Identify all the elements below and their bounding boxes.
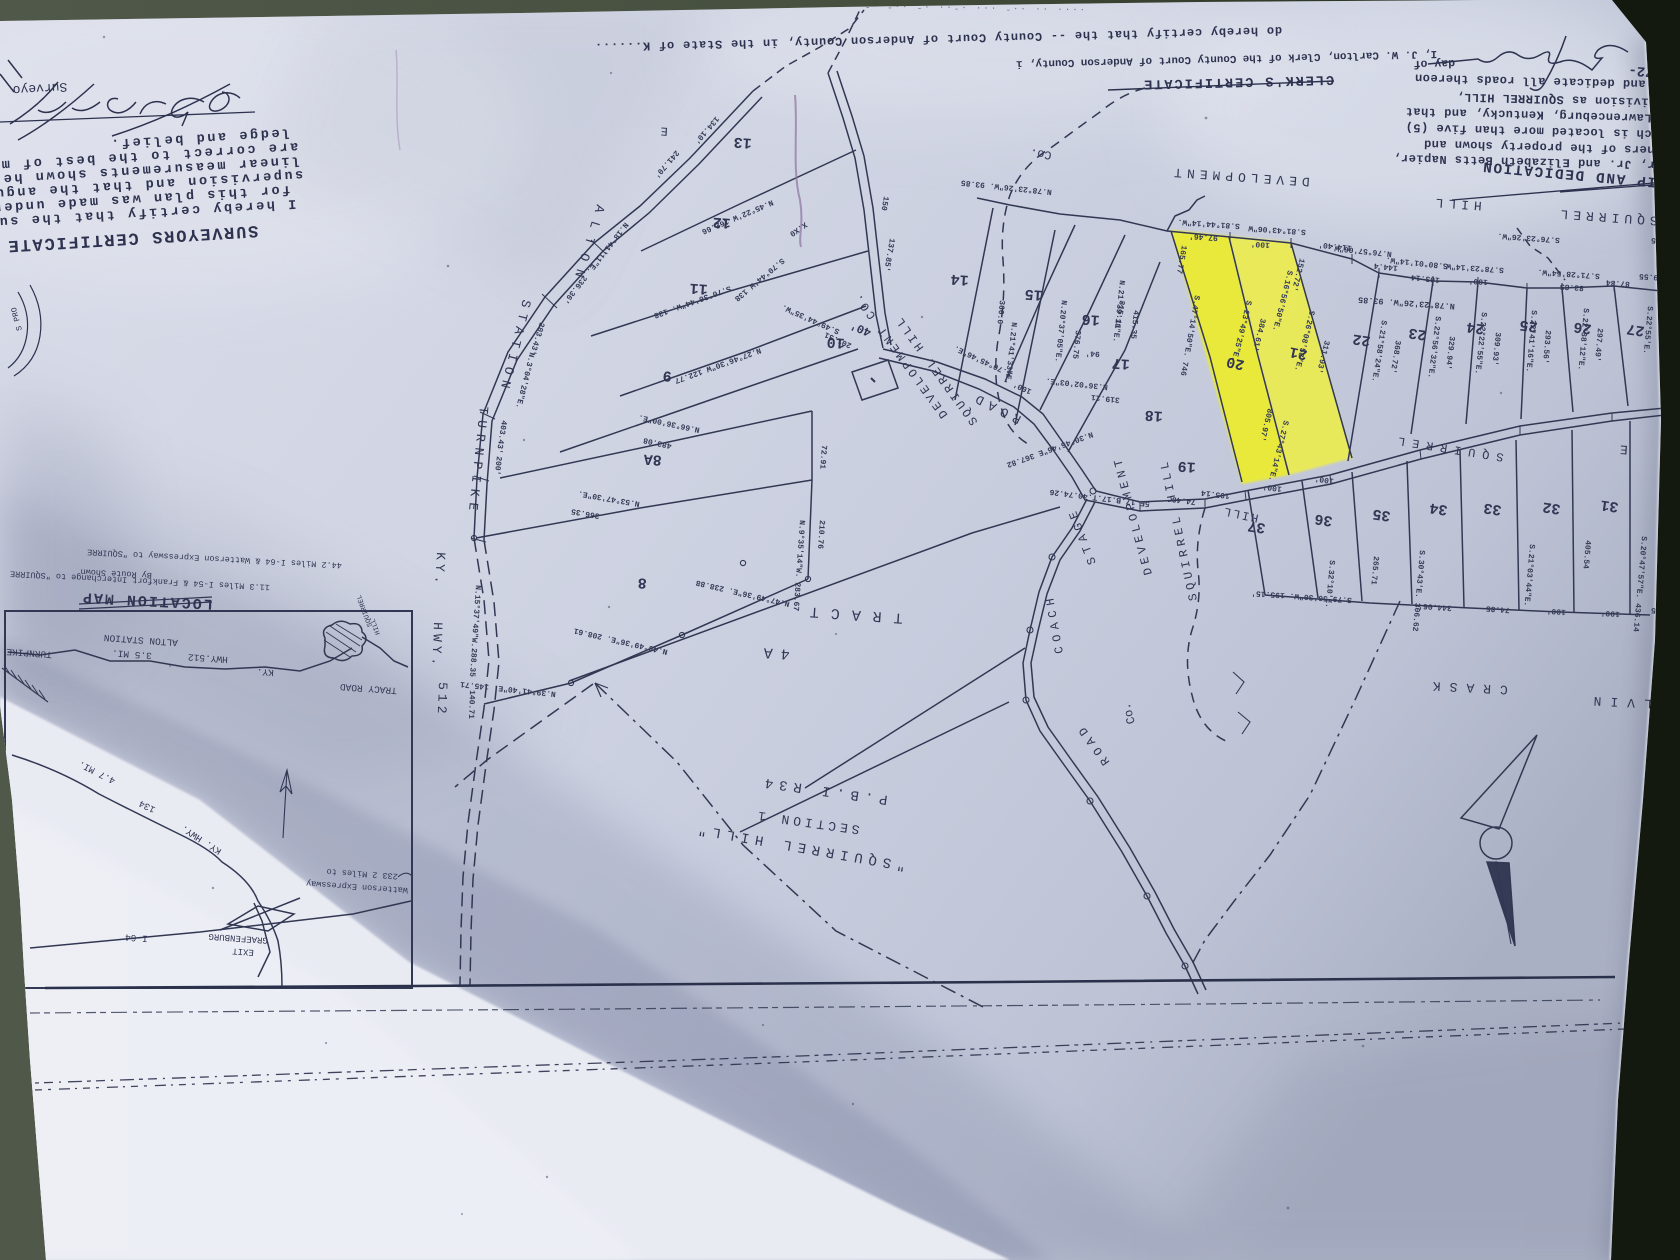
svg-text:17: 17 (1111, 354, 1130, 372)
svg-text:31: 31 (1599, 496, 1619, 515)
svg-text:E: E (660, 124, 668, 138)
svg-text:13: 13 (733, 133, 752, 151)
svg-text:18: 18 (1144, 406, 1163, 424)
svg-text:87.84: 87.84 (1605, 277, 1630, 288)
svg-text:83.85: 83.85 (1559, 281, 1584, 292)
svg-text:100': 100' (1250, 239, 1270, 249)
svg-text:8: 8 (637, 573, 647, 591)
svg-text:22: 22 (1351, 330, 1371, 349)
svg-text:34: 34 (1428, 499, 1448, 518)
svg-text:HWY.: HWY. (428, 622, 445, 670)
svg-text:100': 100' (1600, 608, 1620, 618)
svg-text:72.91: 72.91 (817, 445, 828, 470)
svg-text:100': 100' (1468, 276, 1488, 286)
svg-text:32: 32 (1541, 498, 1561, 517)
svg-text:KY.: KY. (431, 552, 448, 588)
svg-text:I-64: I-64 (124, 931, 148, 944)
svg-text:140.71: 140.71 (466, 690, 476, 719)
svg-text:33: 33 (1482, 499, 1502, 518)
svg-text:23: 23 (1407, 324, 1427, 343)
svg-text:9: 9 (662, 366, 672, 384)
svg-text:100': 100' (1546, 606, 1566, 616)
svg-text:KY.: KY. (256, 666, 274, 678)
svg-text:15: 15 (1024, 285, 1043, 303)
svg-text:74.85: 74.85 (1485, 603, 1510, 614)
svg-text:E: E (1619, 441, 1628, 457)
svg-text:EXIT: EXIT (231, 945, 254, 957)
svg-text:14: 14 (950, 270, 969, 288)
svg-text:36: 36 (1313, 510, 1333, 529)
svg-text:35: 35 (1371, 505, 1391, 524)
svg-text:8A: 8A (643, 450, 662, 468)
svg-text:94': 94' (1085, 348, 1100, 358)
svg-text:19: 19 (1177, 457, 1196, 475)
svg-text:16: 16 (1081, 310, 1100, 328)
svg-text:512: 512 (434, 682, 450, 718)
svg-text:Co.: Co. (1029, 145, 1052, 162)
svg-text:4A: 4A (755, 643, 790, 662)
